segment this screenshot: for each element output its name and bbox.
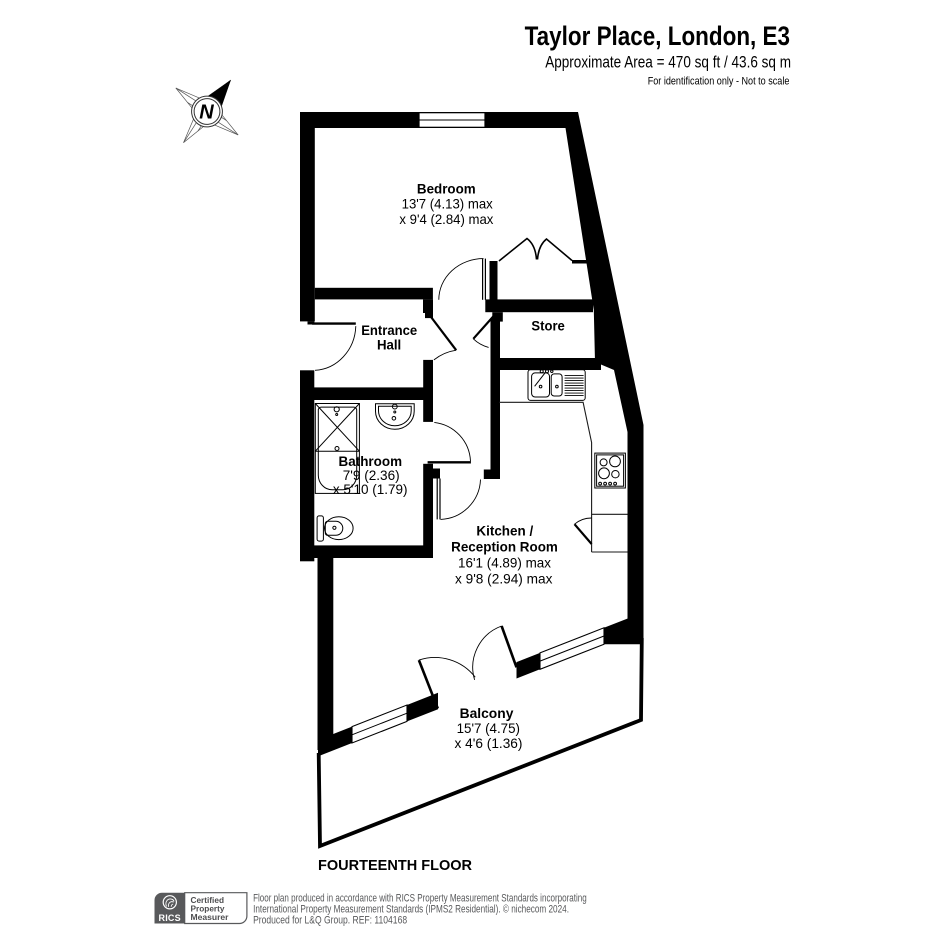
svg-text:Taylor Place, London, E3: Taylor Place, London, E3	[525, 21, 790, 51]
svg-text:x 5'10 (1.79): x 5'10 (1.79)	[333, 482, 408, 497]
svg-text:Produced for L&Q Group. REF:: Produced for L&Q Group. REF: 1104168	[253, 914, 407, 926]
svg-text:Store: Store	[531, 319, 565, 334]
svg-text:Reception Room: Reception Room	[451, 540, 558, 555]
svg-text:15'7 (4.75): 15'7 (4.75)	[457, 721, 520, 736]
svg-text:Approximate Area = 470 sq ft /: Approximate Area = 470 sq ft / 43.6 sq m	[545, 54, 791, 72]
svg-text:x 9'8 (2.94) max: x 9'8 (2.94) max	[455, 572, 553, 587]
svg-text:Bedroom: Bedroom	[417, 182, 476, 197]
svg-text:x 4'6 (1.36): x 4'6 (1.36)	[455, 736, 523, 751]
svg-text:13'7 (4.13) max: 13'7 (4.13) max	[402, 196, 493, 211]
svg-text:RICS: RICS	[159, 913, 181, 923]
svg-text:N: N	[199, 102, 214, 124]
svg-text:Kitchen /: Kitchen /	[476, 523, 533, 538]
svg-text:Entrance: Entrance	[361, 323, 417, 338]
svg-text:16'1 (4.89) max: 16'1 (4.89) max	[458, 556, 551, 571]
svg-text:Balcony: Balcony	[460, 706, 514, 721]
svg-text:Measurer: Measurer	[191, 912, 230, 922]
svg-text:Bathroom: Bathroom	[339, 454, 403, 469]
svg-text:For identification only - Not: For identification only - Not to scale	[648, 76, 790, 88]
svg-text:7'9 (2.36): 7'9 (2.36)	[343, 468, 400, 483]
svg-text:FOURTEENTH FLOOR: FOURTEENTH FLOOR	[318, 857, 472, 874]
svg-text:x 9'4 (2.84) max: x 9'4 (2.84) max	[399, 212, 493, 227]
svg-text:Hall: Hall	[377, 337, 401, 352]
